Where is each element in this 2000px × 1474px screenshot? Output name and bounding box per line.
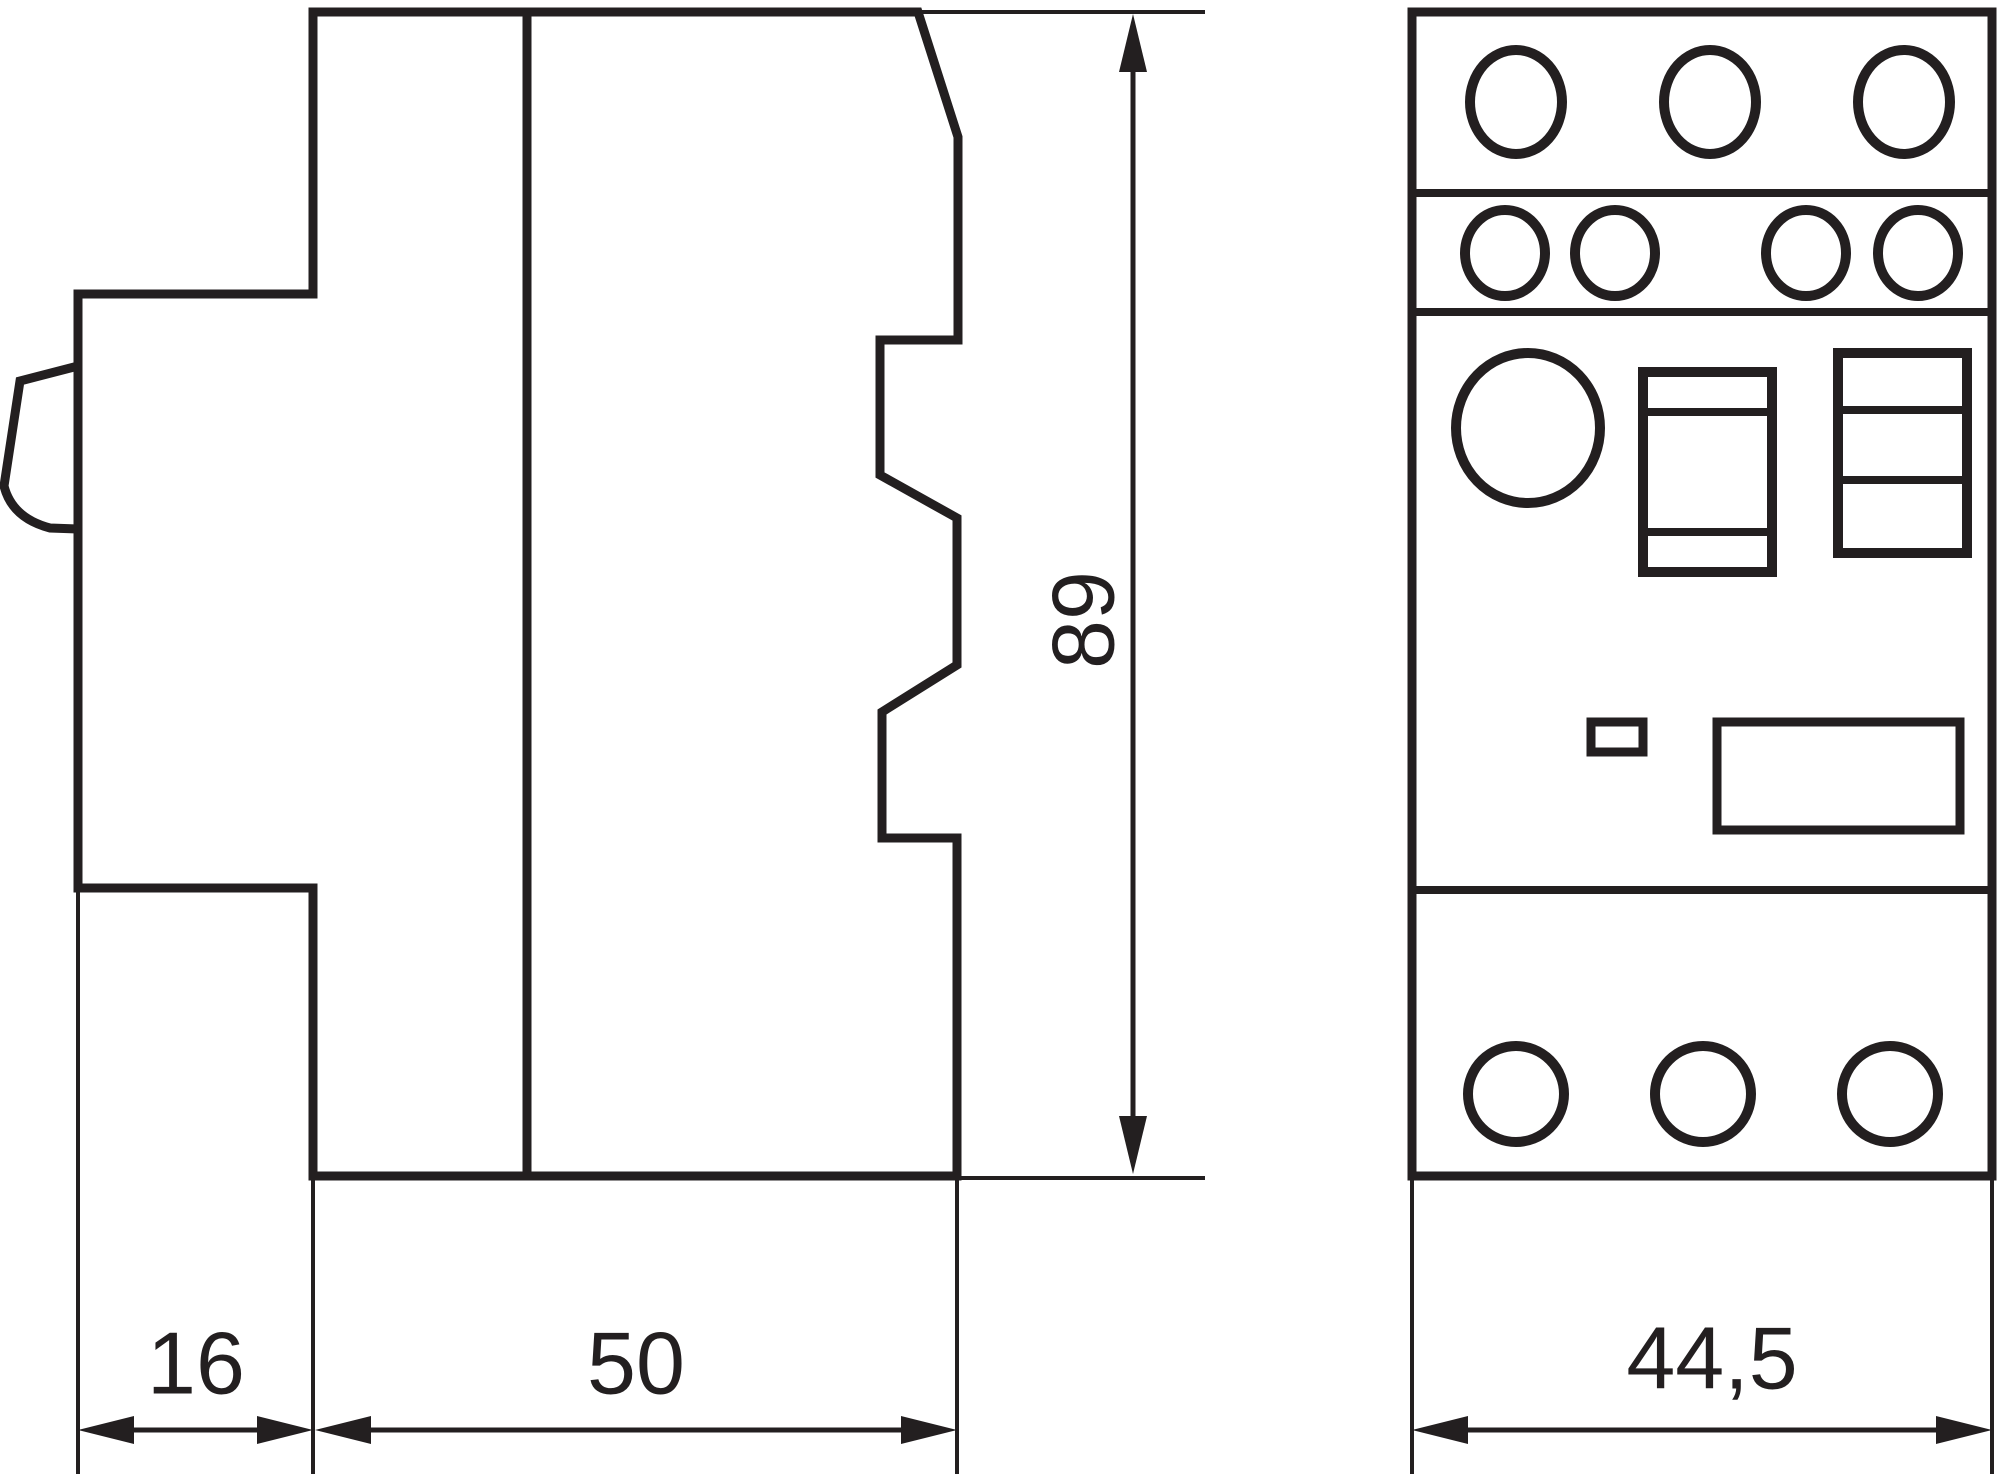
width50-dim-label: 50 bbox=[587, 1314, 685, 1413]
arrow-right-icon bbox=[1936, 1416, 1992, 1444]
arrow-left-icon bbox=[315, 1416, 371, 1444]
aux-screw-2 bbox=[1575, 210, 1655, 296]
arrow-right-icon bbox=[257, 1416, 313, 1444]
din-rail-clip-tab bbox=[4, 366, 78, 529]
terminal-screw-bottom-2 bbox=[1655, 1046, 1751, 1142]
button-block-frame bbox=[1838, 353, 1967, 553]
indicator-slot bbox=[1591, 722, 1643, 752]
dimension-width-44-5: 44,5 bbox=[1412, 1180, 1992, 1474]
dimension-drawing-svg: 89 16 50 44,5 bbox=[0, 0, 2000, 1474]
width445-dim-label: 44,5 bbox=[1626, 1309, 1797, 1408]
aux-screw-3 bbox=[1766, 210, 1846, 296]
side-view-body-outline bbox=[78, 12, 958, 1176]
terminal-screw-bottom-3 bbox=[1842, 1046, 1938, 1142]
top-terminal-screws bbox=[1470, 50, 1950, 154]
control-panel bbox=[1456, 353, 1967, 830]
arrow-left-icon bbox=[78, 1416, 134, 1444]
terminal-screw-bottom-1 bbox=[1468, 1046, 1564, 1142]
width16-dim-label: 16 bbox=[147, 1314, 245, 1413]
side-view bbox=[4, 12, 958, 1176]
arrow-down-icon bbox=[1119, 1116, 1147, 1174]
terminal-screw-top-2 bbox=[1664, 50, 1756, 154]
aux-screw-4 bbox=[1878, 210, 1958, 296]
height-dim-label: 89 bbox=[1034, 571, 1133, 669]
arrow-up-icon bbox=[1119, 14, 1147, 72]
dimension-width-50: 50 bbox=[315, 1180, 957, 1474]
dimension-width-16: 16 bbox=[78, 892, 313, 1474]
label-window bbox=[1717, 722, 1960, 830]
technical-drawing-page: 89 16 50 44,5 bbox=[0, 0, 2000, 1474]
toggle-switch-frame bbox=[1643, 372, 1772, 572]
terminal-screw-top-3 bbox=[1858, 50, 1950, 154]
arrow-right-icon bbox=[901, 1416, 957, 1444]
front-view-housing-outline bbox=[1412, 12, 1992, 1176]
bottom-terminal-screws bbox=[1468, 1046, 1938, 1142]
auxiliary-terminal-screws bbox=[1465, 210, 1958, 296]
terminal-screw-top-1 bbox=[1470, 50, 1562, 154]
front-view bbox=[1412, 12, 1992, 1176]
adjustment-dial bbox=[1456, 353, 1600, 503]
dimension-height-89: 89 bbox=[920, 12, 1205, 1178]
arrow-left-icon bbox=[1412, 1416, 1468, 1444]
aux-screw-1 bbox=[1465, 210, 1545, 296]
